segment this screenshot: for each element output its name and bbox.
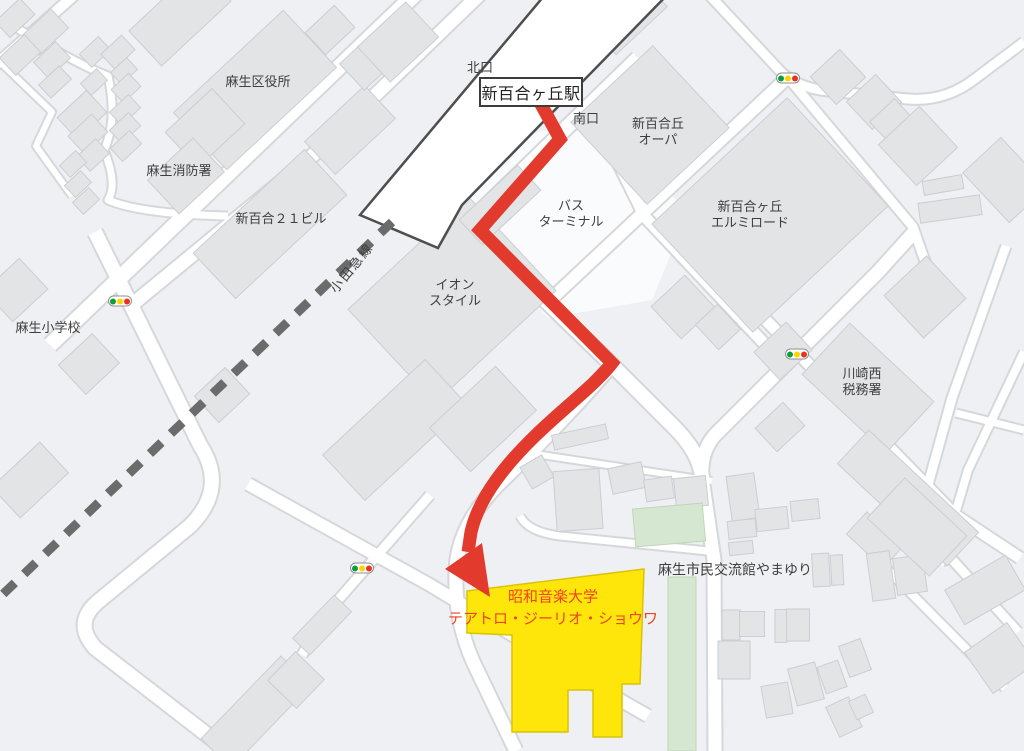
label-kawasaki-tax-office: 川崎西税務署 [842, 366, 881, 398]
signal-dot [352, 565, 358, 571]
traffic-light-icon [108, 296, 132, 307]
label-bus-terminal-text: バス [538, 198, 603, 214]
label-asao-elementary-text: 麻生小学校 [15, 320, 80, 336]
label-bus-terminal: バスターミナル [538, 198, 603, 230]
traffic-light-icon [785, 349, 809, 360]
label-kawasaki-tax-office-text: 川崎西 [842, 366, 881, 382]
access-map: 新百合ヶ丘駅 北口 南口 麻生区役所麻生消防署新百合２１ビル新百合丘オーパバスタ… [0, 0, 1024, 751]
building [812, 553, 831, 587]
green-building [632, 503, 705, 547]
label-shinyuri-21-bldg-text: 新百合２１ビル [235, 211, 326, 227]
signal-dot [787, 351, 793, 357]
label-elmiroad-text: 新百合ヶ丘 [711, 199, 789, 215]
building [830, 555, 844, 586]
label-asao-fire-station: 麻生消防署 [146, 163, 211, 179]
signal-dot [794, 351, 800, 357]
label-destination-text: 昭和音楽大学 [448, 586, 658, 608]
signal-dot [124, 298, 130, 304]
traffic-light-icon [776, 73, 800, 84]
label-asao-fire-station-text: 麻生消防署 [146, 163, 211, 179]
traffic-light-icon [350, 563, 374, 574]
label-aeon-style-text: スタイル [429, 293, 481, 309]
label-bus-terminal-text: ターミナル [538, 214, 603, 230]
label-aeon-style-text: イオン [429, 277, 481, 293]
signal-dot [110, 298, 116, 304]
building [0, 258, 48, 321]
south-exit-label: 南口 [573, 111, 599, 127]
label-kawasaki-tax-office-text: 税務署 [842, 382, 881, 398]
building [59, 334, 120, 395]
label-destination: 昭和音楽大学テアトロ・ジーリオ・ショウワ [448, 586, 658, 630]
label-asao-ward-office-text: 麻生区役所 [225, 74, 290, 90]
building [293, 595, 352, 655]
label-destination-text: テアトロ・ジーリオ・ショウワ [448, 608, 658, 630]
building [722, 610, 740, 640]
label-shinyuri-opa-text: 新百合丘 [632, 116, 684, 132]
building [918, 195, 982, 223]
building [644, 476, 675, 502]
building [775, 610, 787, 643]
north-exit-label: 北口 [467, 60, 493, 76]
building [740, 612, 765, 637]
building [787, 609, 810, 641]
signal-dot [359, 565, 365, 571]
signal-dot [778, 75, 784, 81]
building [755, 506, 789, 531]
building [129, 0, 231, 66]
building [755, 402, 805, 451]
label-aeon-style: イオンスタイル [429, 277, 481, 309]
label-asao-ward-office: 麻生区役所 [225, 74, 290, 90]
signal-dot [117, 298, 123, 304]
road-casing [700, 0, 1024, 99]
signal-dot [785, 75, 791, 81]
building [761, 682, 793, 718]
label-elmiroad-text: エルミロード [711, 215, 789, 231]
building [0, 442, 68, 518]
label-elmiroad: 新百合ヶ丘エルミロード [711, 199, 789, 231]
building [922, 175, 964, 196]
building [839, 639, 872, 678]
building [194, 368, 249, 423]
building [790, 499, 820, 522]
green-building [668, 577, 696, 751]
label-asao-elementary: 麻生小学校 [15, 320, 80, 336]
signal-dot [792, 75, 798, 81]
building [718, 641, 750, 679]
label-shinyuri-21-bldg: 新百合２１ビル [235, 211, 326, 227]
station-label-box: 新百合ヶ丘駅 [479, 77, 583, 107]
signal-dot [366, 565, 372, 571]
label-shinyuri-opa: 新百合丘オーパ [632, 116, 684, 148]
label-yamayuri-center: 麻生市民交流館やまゆり [658, 561, 812, 578]
building [884, 256, 966, 338]
label-shinyuri-opa-text: オーパ [632, 132, 684, 148]
label-yamayuri-center-text: 麻生市民交流館やまゆり [658, 561, 812, 578]
building [728, 540, 753, 555]
building [553, 468, 603, 531]
building [727, 519, 757, 540]
station-name: 新百合ヶ丘駅 [481, 80, 580, 104]
signal-dot [801, 351, 807, 357]
